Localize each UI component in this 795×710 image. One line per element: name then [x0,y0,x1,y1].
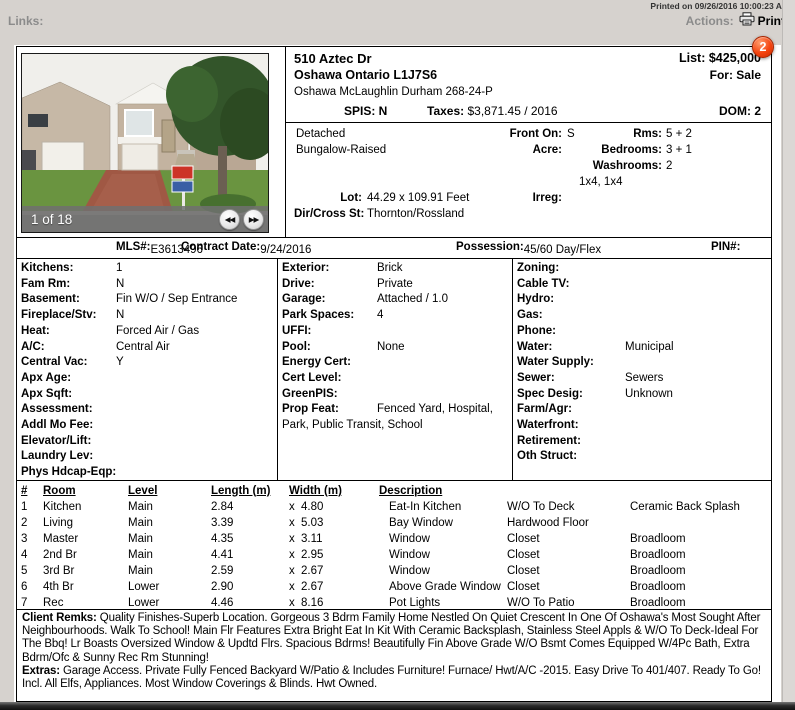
rooms-table: # Room Level Length (m) Width (m) Descri… [17,480,771,609]
photo-prev-button[interactable]: ◀◀ [219,209,240,230]
lot-size: 44.29 x 109.91 Feet [367,192,469,204]
photo-next-button[interactable]: ▶▶ [243,209,264,230]
bottom-window-edge [0,702,795,710]
address-section: 510 Aztec Dr Oshawa Ontario L1J7S6 Oshaw… [286,47,771,123]
detail-row: Addl Mo Fee: [21,418,275,434]
property-photo[interactable]: 1 of 18 ◀◀ ▶▶ [21,53,269,233]
detail-row: Phys Hdcap-Eqp: [21,465,275,481]
remarks-section: Client Remks: Quality Finishes-Superb Lo… [17,609,771,702]
print-button[interactable]: Print [739,12,785,29]
municipality-line: Oshawa McLaughlin Durham 268-24-P [294,86,493,98]
detail-row: Apx Sqft: [21,387,275,403]
detail-row: Fireplace/Stv:N [21,308,275,324]
mls-number: MLS#: E3613496 [116,241,151,253]
detail-row: Kitchens:1 [21,261,275,277]
detail-row: GreenPIS: [282,387,510,403]
list-price: List: $425,000 [679,51,761,65]
detail-row: Basement:Fin W/O / Sep Entrance [21,292,275,308]
notification-badge[interactable]: 2 [752,36,774,58]
detail-row: Cable TV: [517,277,769,293]
listing-sheet: 1 of 18 ◀◀ ▶▶ 510 Aztec Dr Oshawa Ontari… [16,46,772,702]
property-summary-section: Detached Front On: S Rms: 5 + 2 Bungalow… [286,123,771,224]
actions-bar: Actions: Print [686,12,785,29]
property-type: Detached [296,128,345,140]
photo-toolbar: 1 of 18 ◀◀ ▶▶ [22,206,268,232]
bedrooms-count: 3 + 1 [666,144,692,156]
detail-row: A/C:Central Air [21,340,275,356]
detail-row: UFFI: [282,324,510,340]
street-address: 510 Aztec Dr [294,51,372,66]
table-row: 2 Living Main 3.39 x5.03 Bay Window Hard… [21,515,771,531]
detail-row: Elevator/Lift: [21,434,275,450]
possession: Possession: 45/60 Day/Flex [456,241,524,253]
print-label: Print [758,14,785,28]
detail-row: Fam Rm:N [21,277,275,293]
for-sale: For: Sale [710,68,761,82]
table-row: 3 Master Main 4.35 x3.11 Window Closet B… [21,531,771,547]
table-row: 4 2nd Br Main 4.41 x2.95 Window Closet B… [21,547,771,563]
detail-row: Central Vac:Y [21,355,275,371]
rooms-table-header: # Room Level Length (m) Width (m) Descri… [21,482,771,499]
days-on-market: DOM: 2 [719,104,761,118]
detail-row: Pool:None [282,340,510,356]
detail-row: Park Spaces:4 [282,308,510,324]
detail-row: Heat:Forced Air / Gas [21,324,275,340]
actions-label: Actions: [686,14,734,28]
detail-row: Retirement: [517,434,769,450]
contract-date: Contract Date: 9/24/2016 [181,241,260,253]
photo-counter: 1 of 18 [31,212,72,227]
detail-row: Garage:Attached / 1.0 [282,292,510,308]
print-icon [739,12,755,29]
listing-panel: 1 of 18 ◀◀ ▶▶ 510 Aztec Dr Oshawa Ontari… [14,45,781,703]
detail-row: Phone: [517,324,769,340]
detail-row: Exterior:Brick [282,261,510,277]
detail-row: Apx Age: [21,371,275,387]
detail-row: Zoning: [517,261,769,277]
rooms-table-body: 1 Kitchen Main 2.84 x4.80 Eat-In Kitchen… [21,499,771,611]
right-gutter [782,0,795,703]
taxes: Taxes: $3,871.45 / 2016 [427,104,558,118]
detail-row: Farm/Agr: [517,402,769,418]
detail-row: Prop Feat:Fenced Yard, Hospital, Park, P… [282,402,510,433]
extras: Extras: Garage Access. Private Fully Fen… [22,665,767,691]
cross-street: Thornton/Rossland [367,208,464,220]
property-style: Bungalow-Raised [296,144,386,156]
detail-row: Water:Municipal [517,340,769,356]
table-row: 1 Kitchen Main 2.84 x4.80 Eat-In Kitchen… [21,499,771,515]
client-remarks: Client Remks: Quality Finishes-Superb Lo… [22,612,767,665]
detail-row: Water Supply: [517,355,769,371]
table-row: 6 4th Br Lower 2.90 x2.67 Above Grade Wi… [21,579,771,595]
links-label: Links: [8,14,43,28]
details-section: Kitchens:1Fam Rm:NBasement:Fin W/O / Sep… [17,259,771,480]
details-column-3: Zoning:Cable TV:Hydro:Gas:Phone:Water:Mu… [513,259,771,480]
detail-row: Hydro: [517,292,769,308]
detail-row: Waterfront: [517,418,769,434]
washrooms-count: 2 [666,160,672,172]
header-info-box: 510 Aztec Dr Oshawa Ontario L1J7S6 Oshaw… [285,47,771,237]
detail-row: Assessment: [21,402,275,418]
washroom-detail: 1x4, 1x4 [579,176,622,188]
rooms-count: 5 + 2 [666,128,692,140]
details-column-2: Exterior:BrickDrive:PrivateGarage:Attach… [278,259,513,480]
printed-timestamp: Printed on 09/26/2016 10:00:23 AM [650,1,789,11]
detail-row: Drive:Private [282,277,510,293]
spis: SPIS: N [344,104,387,118]
table-row: 5 3rd Br Main 2.59 x2.67 Window Closet B… [21,563,771,579]
detail-row: Energy Cert: [282,355,510,371]
detail-row: Cert Level: [282,371,510,387]
detail-row: Gas: [517,308,769,324]
city-postal: Oshawa Ontario L1J7S6 [294,68,437,82]
detail-row: Oth Struct: [517,449,769,465]
details-column-1: Kitchens:1Fam Rm:NBasement:Fin W/O / Sep… [17,259,278,480]
detail-row: Spec Desig:Unknown [517,387,769,403]
pin-number: PIN#: [711,241,740,253]
mls-strip: MLS#: E3613496 Contract Date: 9/24/2016 … [17,237,771,259]
listing-print-page: Printed on 09/26/2016 10:00:23 AM Links:… [0,0,795,710]
detail-row: Sewer:Sewers [517,371,769,387]
detail-row: Laundry Lev: [21,449,275,465]
